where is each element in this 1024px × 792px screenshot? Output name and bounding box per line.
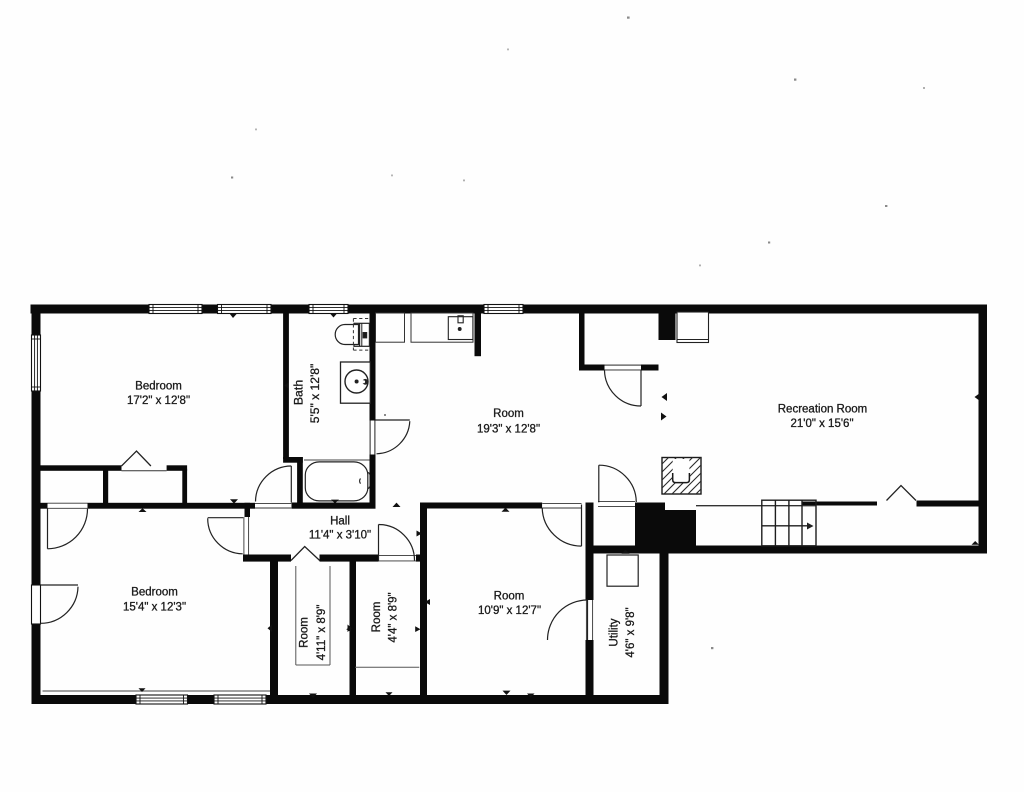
svg-text:Bedroom: Bedroom: [131, 587, 178, 599]
svg-text:Room: Room: [494, 591, 525, 603]
svg-text:11'4" x 3'10": 11'4" x 3'10": [309, 530, 371, 542]
svg-text:Room: Room: [371, 602, 383, 633]
svg-text:4'6" x 9'8": 4'6" x 9'8": [625, 607, 637, 657]
svg-text:5'5" x 12'8": 5'5" x 12'8": [308, 364, 322, 424]
svg-text:4'4" x 8'9": 4'4" x 8'9": [388, 592, 400, 642]
svg-text:Bath: Bath: [292, 380, 306, 405]
svg-text:10'9" x 12'7": 10'9" x 12'7": [478, 605, 541, 617]
svg-text:Hall: Hall: [330, 516, 350, 528]
svg-text:Room: Room: [493, 408, 524, 420]
svg-text:Recreation Room: Recreation Room: [778, 404, 867, 416]
svg-text:15'4" x 12'3": 15'4" x 12'3": [123, 602, 186, 614]
svg-text:21'0" x 15'6": 21'0" x 15'6": [790, 418, 853, 430]
svg-text:Utility: Utility: [609, 618, 621, 646]
svg-text:19'3" x 12'8": 19'3" x 12'8": [477, 424, 540, 436]
svg-text:Room: Room: [299, 617, 311, 648]
svg-text:Bedroom: Bedroom: [135, 381, 182, 393]
svg-text:17'2" x 12'8": 17'2" x 12'8": [127, 395, 190, 407]
svg-text:4'11" x 8'9": 4'11" x 8'9": [316, 605, 328, 661]
